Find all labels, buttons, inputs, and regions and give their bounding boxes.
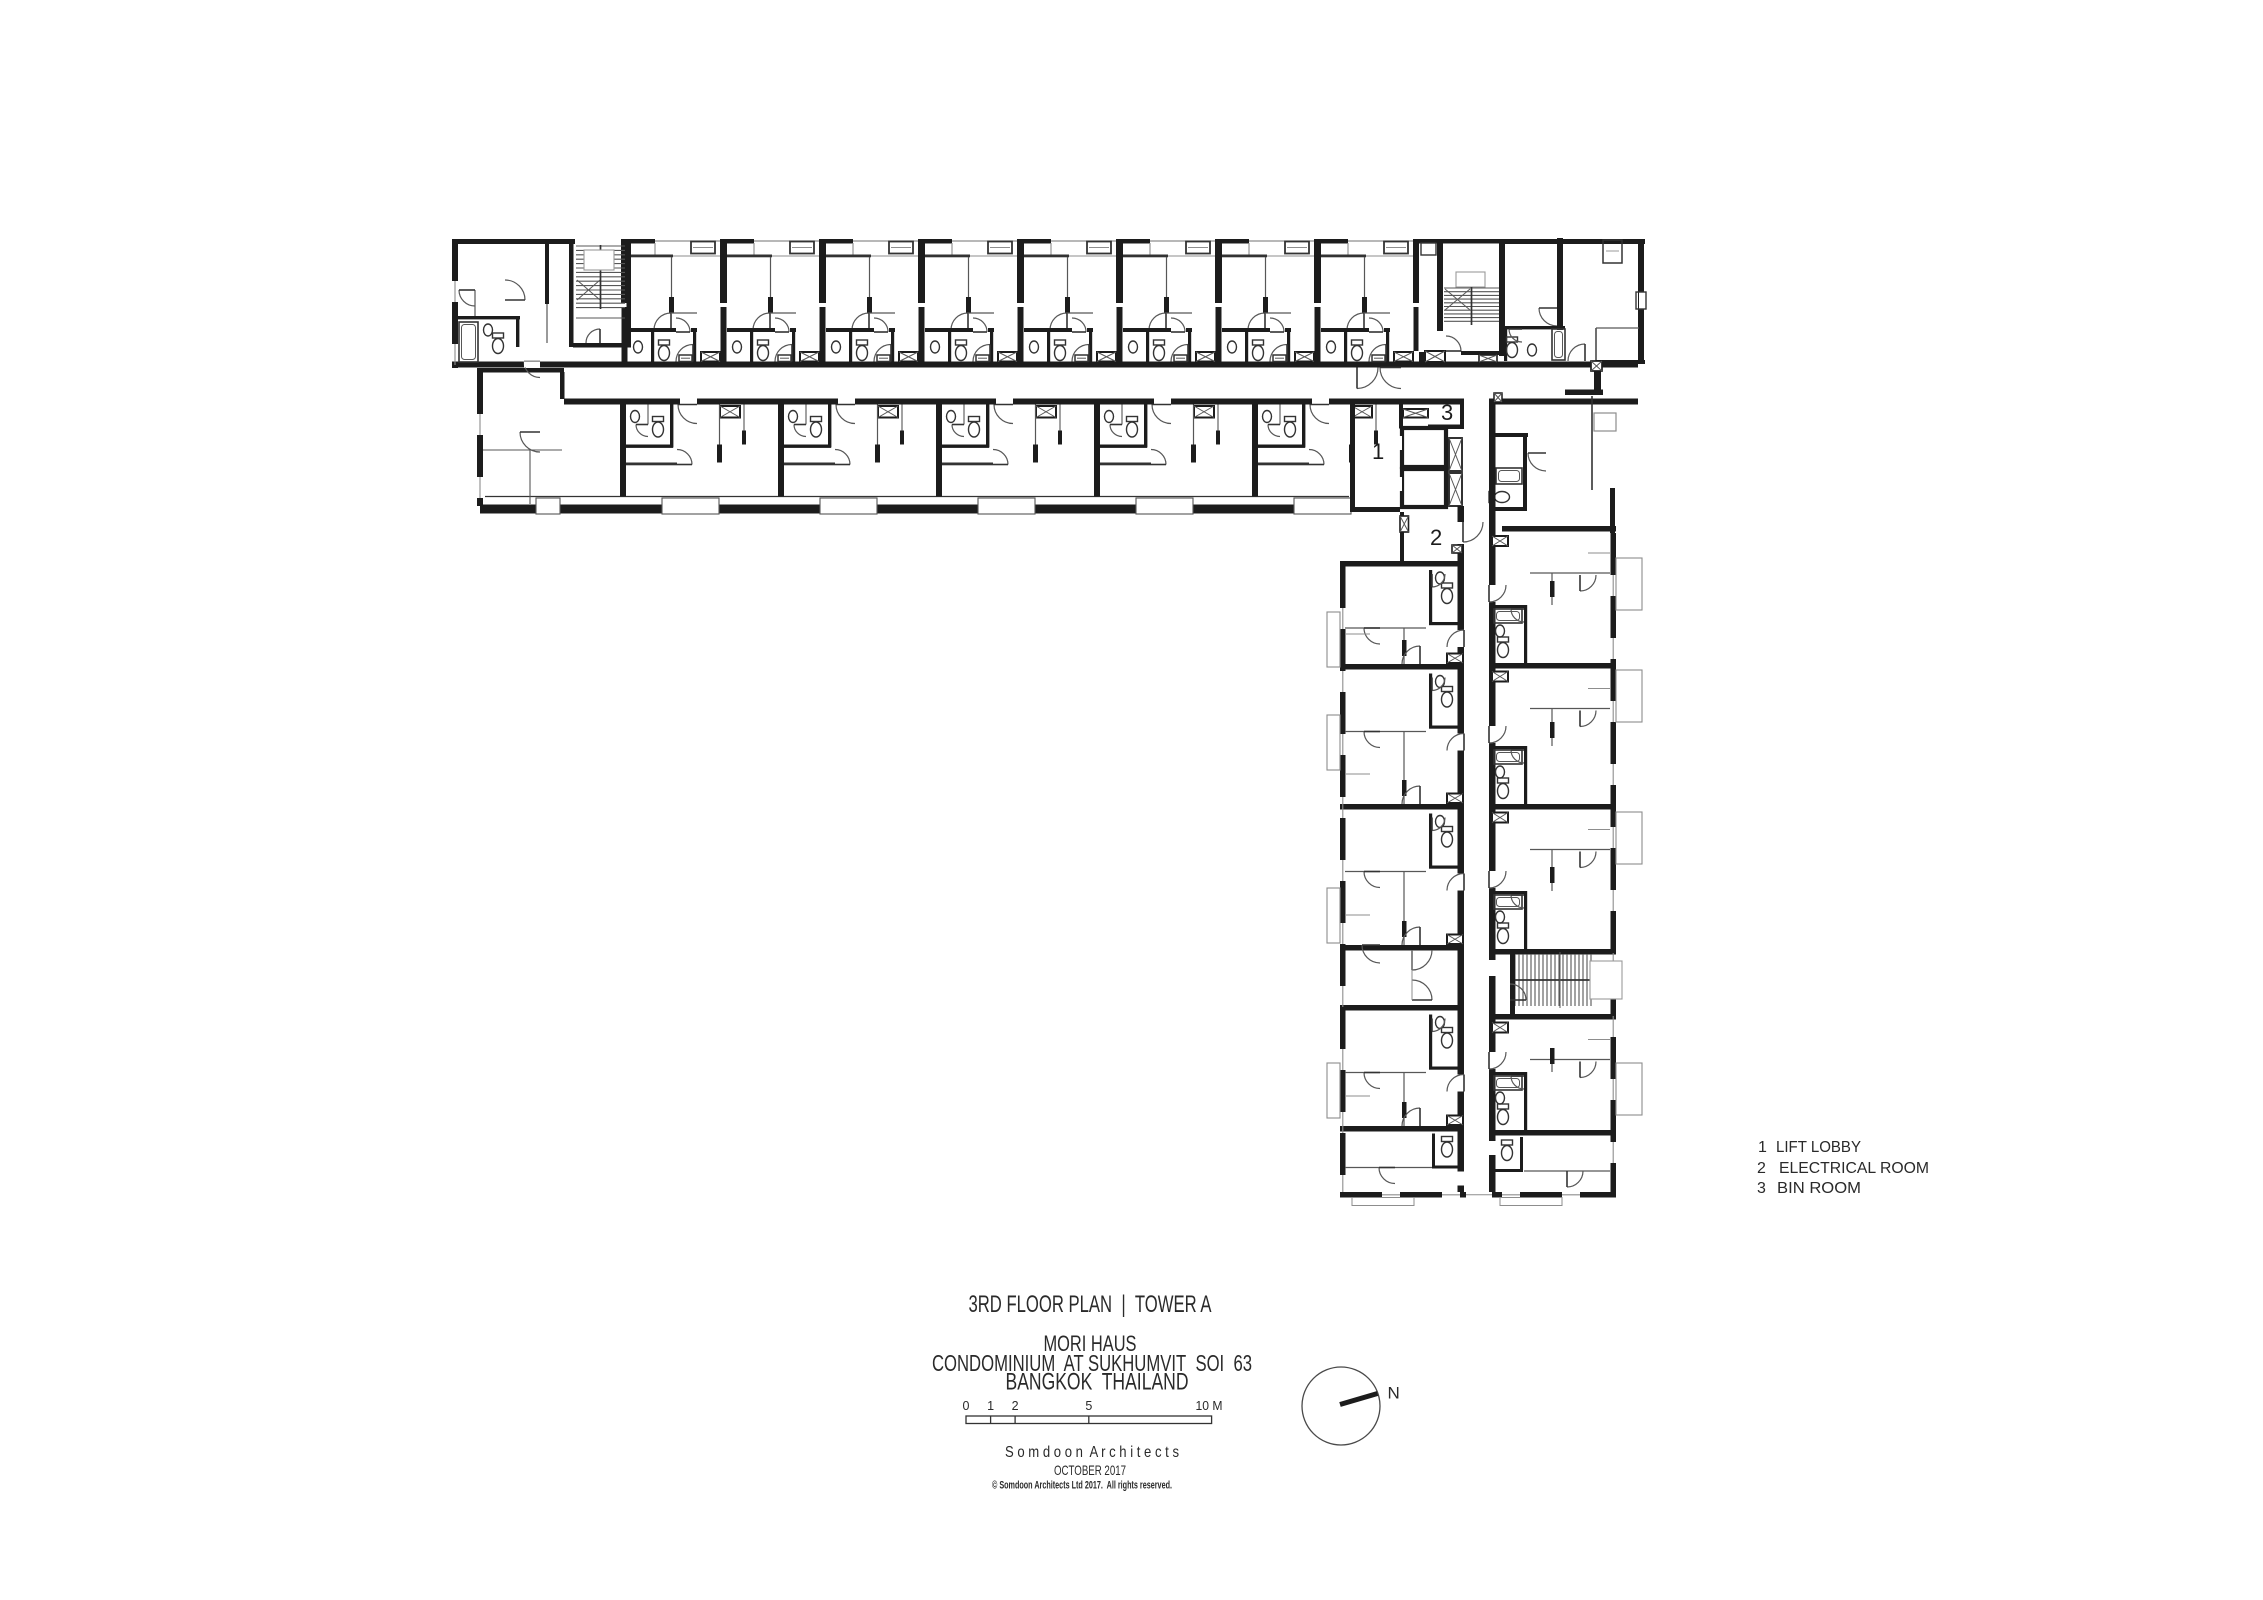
svg-text:2: 2 (1012, 1399, 1019, 1413)
svg-text:N: N (1388, 1384, 1400, 1403)
svg-text:10 M: 10 M (1196, 1399, 1223, 1413)
svg-text:3: 3 (1757, 1180, 1766, 1197)
svg-text:© Somdoon Architects Ltd 2017.: © Somdoon Architects Ltd 2017. All right… (992, 1480, 1172, 1492)
svg-text:BIN ROOM: BIN ROOM (1777, 1180, 1861, 1197)
svg-text:3RD FLOOR PLAN | TOWER A: 3RD FLOOR PLAN | TOWER A (969, 1291, 1212, 1318)
svg-text:BANGKOK THAILAND: BANGKOK THAILAND (1006, 1369, 1189, 1396)
svg-text:5: 5 (1085, 1399, 1092, 1413)
svg-text:1: 1 (987, 1399, 994, 1413)
svg-text:1: 1 (1758, 1139, 1767, 1156)
svg-text:2: 2 (1430, 525, 1442, 550)
svg-text:OCTOBER 2017: OCTOBER 2017 (1054, 1462, 1126, 1478)
svg-text:3: 3 (1441, 400, 1453, 425)
svg-text:ELECTRICAL ROOM: ELECTRICAL ROOM (1779, 1160, 1929, 1177)
svg-text:2: 2 (1757, 1160, 1766, 1177)
svg-text:LIFT LOBBY: LIFT LOBBY (1776, 1139, 1861, 1156)
svg-text:S o m d o o n A r c h i t e c: S o m d o o n A r c h i t e c t s (1005, 1444, 1179, 1461)
svg-text:1: 1 (1372, 439, 1384, 464)
svg-text:0: 0 (963, 1399, 970, 1413)
